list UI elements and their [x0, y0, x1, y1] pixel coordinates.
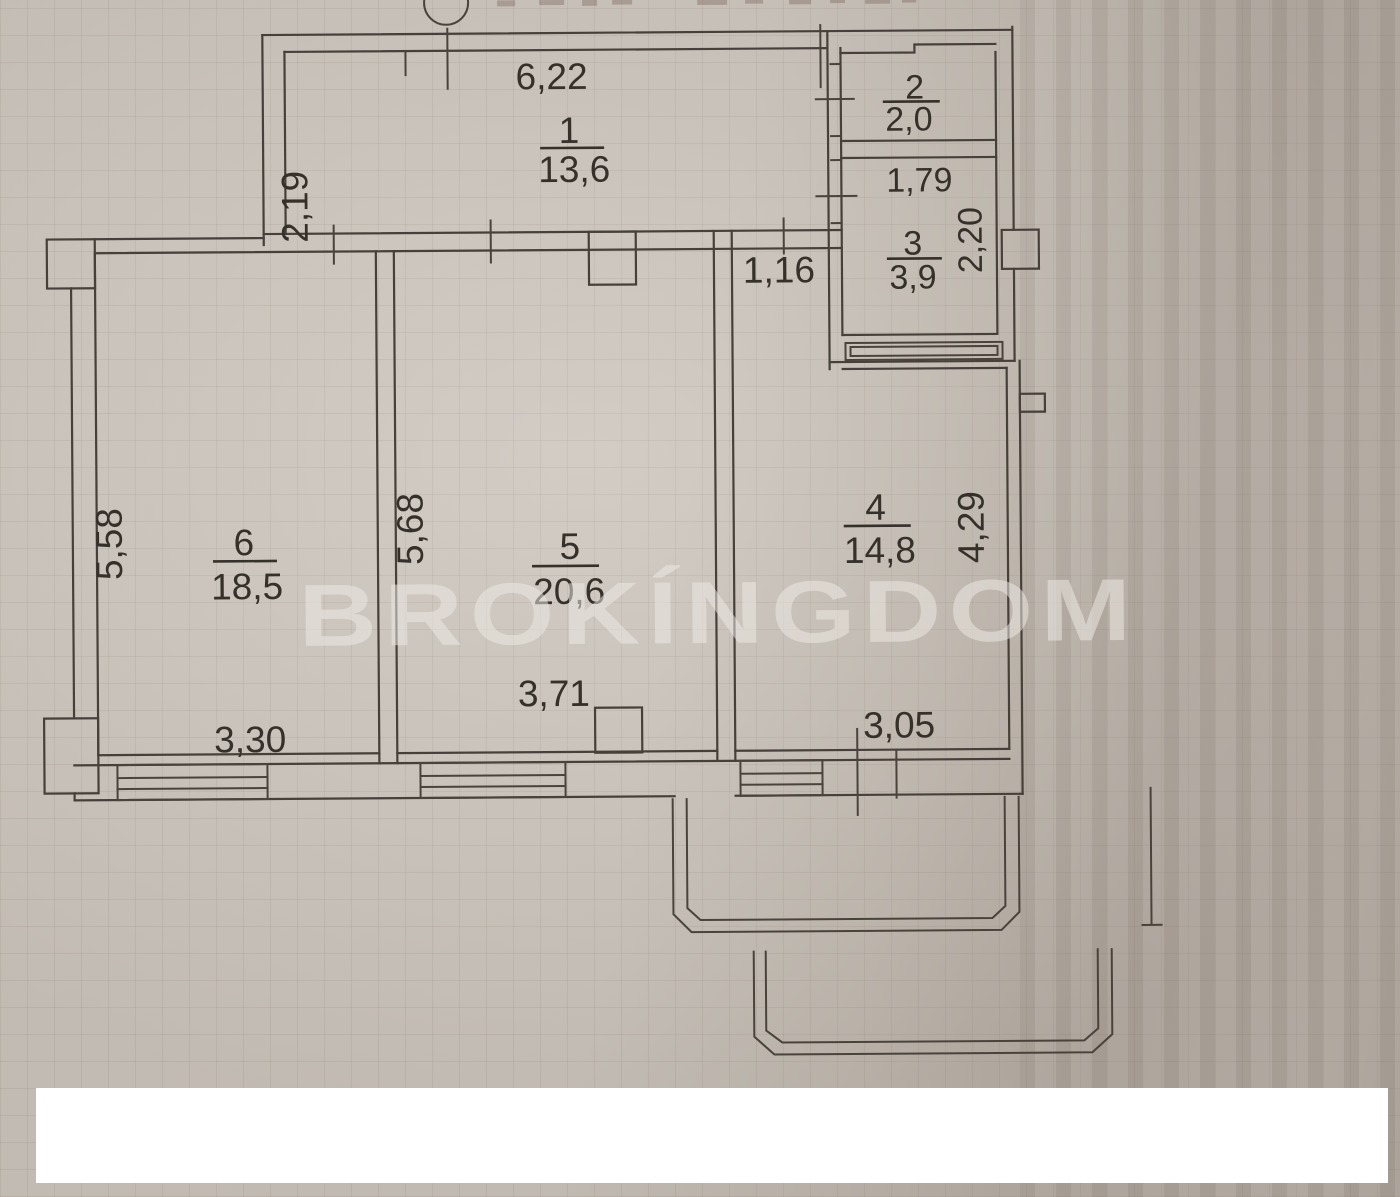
room-2-area: 2,0	[885, 100, 933, 138]
floor-plan-drawing: 6,22 2,19 1 13,6 2 2,0 1,79 3 3,9 2,20 1…	[0, 0, 1400, 1197]
top-edge-smudges	[497, 0, 1305, 6]
room-5-width-dim: 3,71	[518, 673, 590, 715]
room-6-area: 18,5	[211, 566, 283, 608]
pilaster-top-left	[47, 239, 95, 288]
edge-mark-right	[1142, 788, 1162, 925]
room-3-number: 3	[903, 224, 922, 262]
balconies	[673, 788, 1163, 1055]
floorplan-photo: 6,22 2,19 1 13,6 2 2,0 1,79 3 3,9 2,20 1…	[0, 0, 1400, 1197]
room-5-number: 5	[559, 526, 580, 567]
redaction-bar	[36, 1088, 1388, 1183]
room-1-area: 13,6	[538, 149, 610, 191]
room-6-width-dim: 3,30	[214, 719, 286, 761]
room-1-number: 1	[559, 110, 580, 151]
room-6-number: 6	[233, 522, 254, 563]
room-4-width-dim: 3,05	[863, 704, 935, 746]
room-3-width-dim: 1,79	[886, 161, 952, 199]
balcony-1-outline	[673, 797, 1020, 932]
stamp-circle	[424, 0, 468, 25]
room-4-height-dim: 4,29	[951, 491, 993, 563]
room-5-height-dim: 5,68	[390, 493, 432, 565]
room-3-area: 3,9	[889, 258, 937, 296]
window-room4	[740, 760, 822, 796]
room-4-number: 4	[865, 487, 886, 528]
room-6-height-dim: 5,58	[89, 508, 131, 580]
duct-room5-bottom	[595, 707, 642, 752]
watermark: BROKÍNGDOM	[298, 560, 1139, 665]
pilaster-bottom-left	[44, 718, 99, 793]
window-room6	[117, 764, 267, 800]
window-room5	[420, 762, 565, 798]
dimension-ticks	[332, 25, 897, 819]
wall-bump-right	[1020, 394, 1045, 412]
room-1-width-dim: 6,22	[515, 56, 587, 98]
room-3-height-dim: 2,20	[952, 207, 990, 273]
room-4-opening-dim: 1,16	[743, 249, 815, 291]
window-strip-room3	[845, 342, 1002, 360]
room-1-height-dim: 2,19	[274, 171, 316, 243]
duct-room5-top	[589, 231, 636, 284]
balcony-2-outline	[754, 949, 1113, 1054]
